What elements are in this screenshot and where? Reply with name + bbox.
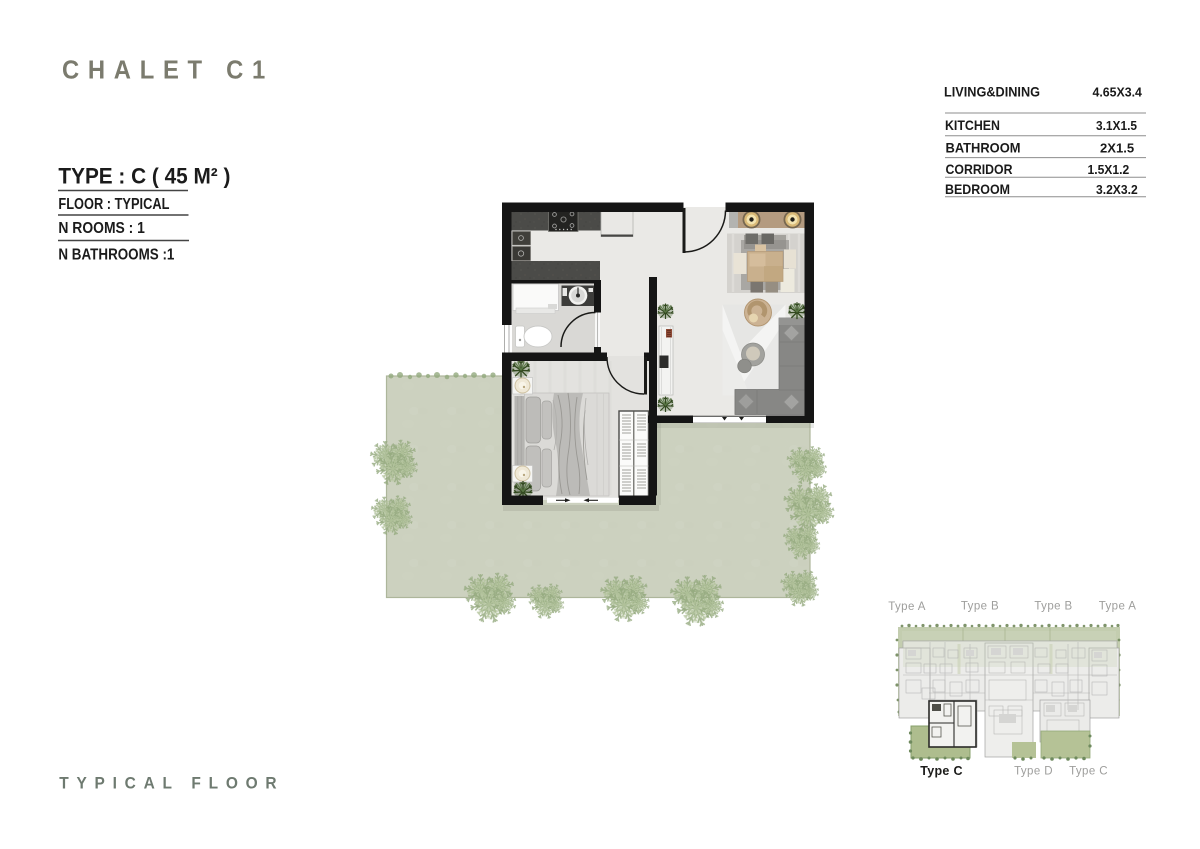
svg-text:CHALET C1: CHALET C1 (62, 55, 274, 85)
svg-text:2X1.5: 2X1.5 (1100, 141, 1134, 156)
svg-text:BATHROOM: BATHROOM (946, 140, 1021, 156)
svg-text:Type A: Type A (888, 601, 926, 613)
svg-text:KITCHEN: KITCHEN (945, 117, 1000, 133)
svg-text:N ROOMS : 1: N ROOMS : 1 (58, 220, 145, 237)
svg-text:N BATHROOMS :1: N BATHROOMS :1 (58, 247, 174, 264)
svg-text:1.5X1.2: 1.5X1.2 (1088, 162, 1130, 177)
svg-text:Type D: Type D (1014, 766, 1053, 778)
svg-text:TYPE : C ( 45 M² ): TYPE : C ( 45 M² ) (58, 164, 230, 189)
svg-text:CORRIDOR: CORRIDOR (946, 161, 1013, 177)
svg-text:4.65X3.4: 4.65X3.4 (1093, 85, 1143, 100)
svg-text:Type A: Type A (1099, 601, 1137, 613)
svg-text:Type C: Type C (1069, 766, 1108, 778)
svg-text:LIVING&DINING: LIVING&DINING (944, 84, 1040, 100)
svg-text:BEDROOM: BEDROOM (945, 181, 1010, 197)
svg-text:TYPICAL FLOOR: TYPICAL FLOOR (59, 774, 284, 793)
svg-text:FLOOR : TYPICAL: FLOOR : TYPICAL (58, 196, 169, 213)
svg-text:Type C: Type C (920, 764, 963, 778)
svg-text:3.1X1.5: 3.1X1.5 (1096, 118, 1137, 133)
svg-text:Type B: Type B (961, 601, 999, 613)
svg-text:Type B: Type B (1034, 601, 1072, 613)
svg-text:3.2X3.2: 3.2X3.2 (1096, 182, 1138, 197)
